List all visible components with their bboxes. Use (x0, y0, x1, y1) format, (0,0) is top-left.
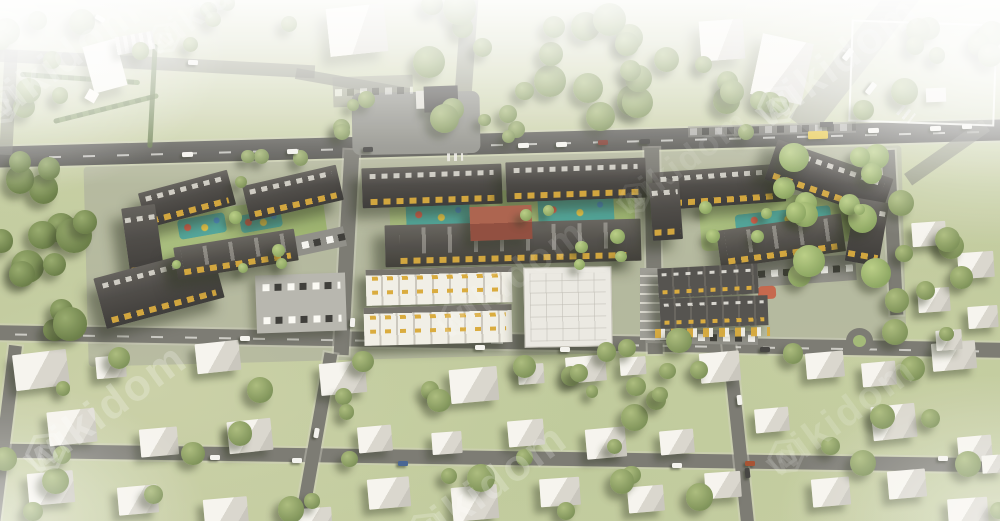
watermark-text: wikidom (13, 333, 196, 485)
watermark-text: wikidom (745, 0, 928, 138)
watermarks-layer: wikidom wikidom wikidom wikidom wikidom (0, 0, 1000, 521)
watermark-text: wikidom (138, 0, 286, 64)
aerial-masterplan-render: wikidom wikidom wikidom wikidom wikidom (0, 0, 1000, 521)
watermark-text: wikidom (757, 348, 924, 487)
watermark-text: wikidom (0, 0, 150, 138)
watermark-text: wikidom (427, 210, 594, 349)
watermark-text: wikidom (608, 101, 756, 224)
watermark-text: wikidom (393, 413, 576, 521)
